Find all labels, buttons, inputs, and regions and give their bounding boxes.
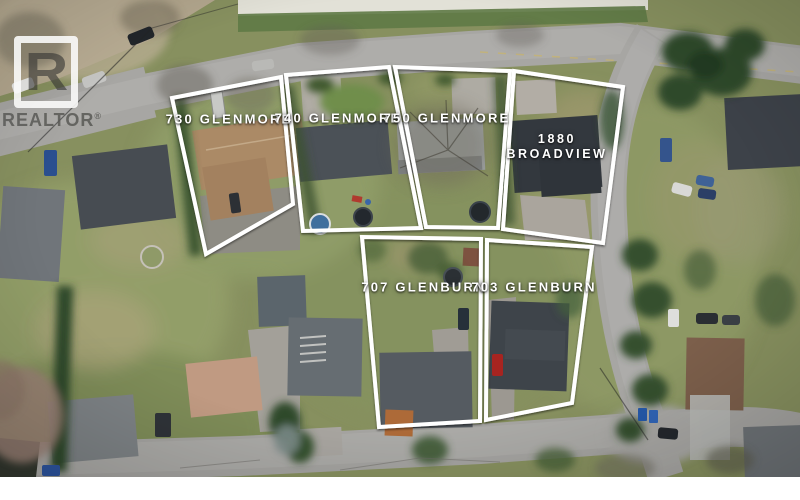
lot-outline-707-glenburn bbox=[362, 237, 481, 427]
lot-label-1880-line2: BROADVIEW bbox=[506, 147, 607, 162]
realtor-logo-letter: R bbox=[24, 45, 68, 99]
lot-outlines-layer bbox=[0, 0, 800, 477]
lot-outline-703-glenburn bbox=[486, 240, 592, 420]
lot-outline-750-glenmore bbox=[395, 67, 510, 228]
realtor-logo-icon: R bbox=[14, 36, 78, 108]
lot-label-1880-broadview: 1880 BROADVIEW bbox=[506, 132, 607, 162]
lot-label-707-glenburn: 707 GLENBURN bbox=[361, 280, 486, 295]
screenshot-root: 730 GLENMORE 740 GLENMORE 750 GLENMORE 1… bbox=[0, 0, 800, 500]
lot-label-740-glenmore: 740 GLENMORE bbox=[275, 111, 402, 126]
bottom-letterbox bbox=[0, 477, 800, 500]
realtor-wordmark: REALTOR® bbox=[2, 110, 102, 131]
lot-label-750-glenmore: 750 GLENMORE bbox=[384, 111, 511, 126]
lot-outline-730-glenmore bbox=[172, 77, 293, 254]
registered-symbol: ® bbox=[94, 111, 102, 121]
lot-label-1880-line1: 1880 bbox=[506, 132, 607, 147]
lot-label-730-glenmore: 730 GLENMORE bbox=[166, 112, 293, 127]
lot-label-703-glenburn: 703 GLENBURN bbox=[471, 280, 596, 295]
realtor-brand-text: REALTOR bbox=[2, 110, 94, 130]
aerial-photo: 730 GLENMORE 740 GLENMORE 750 GLENMORE 1… bbox=[0, 0, 800, 477]
realtor-watermark: R REALTOR® bbox=[2, 36, 102, 131]
